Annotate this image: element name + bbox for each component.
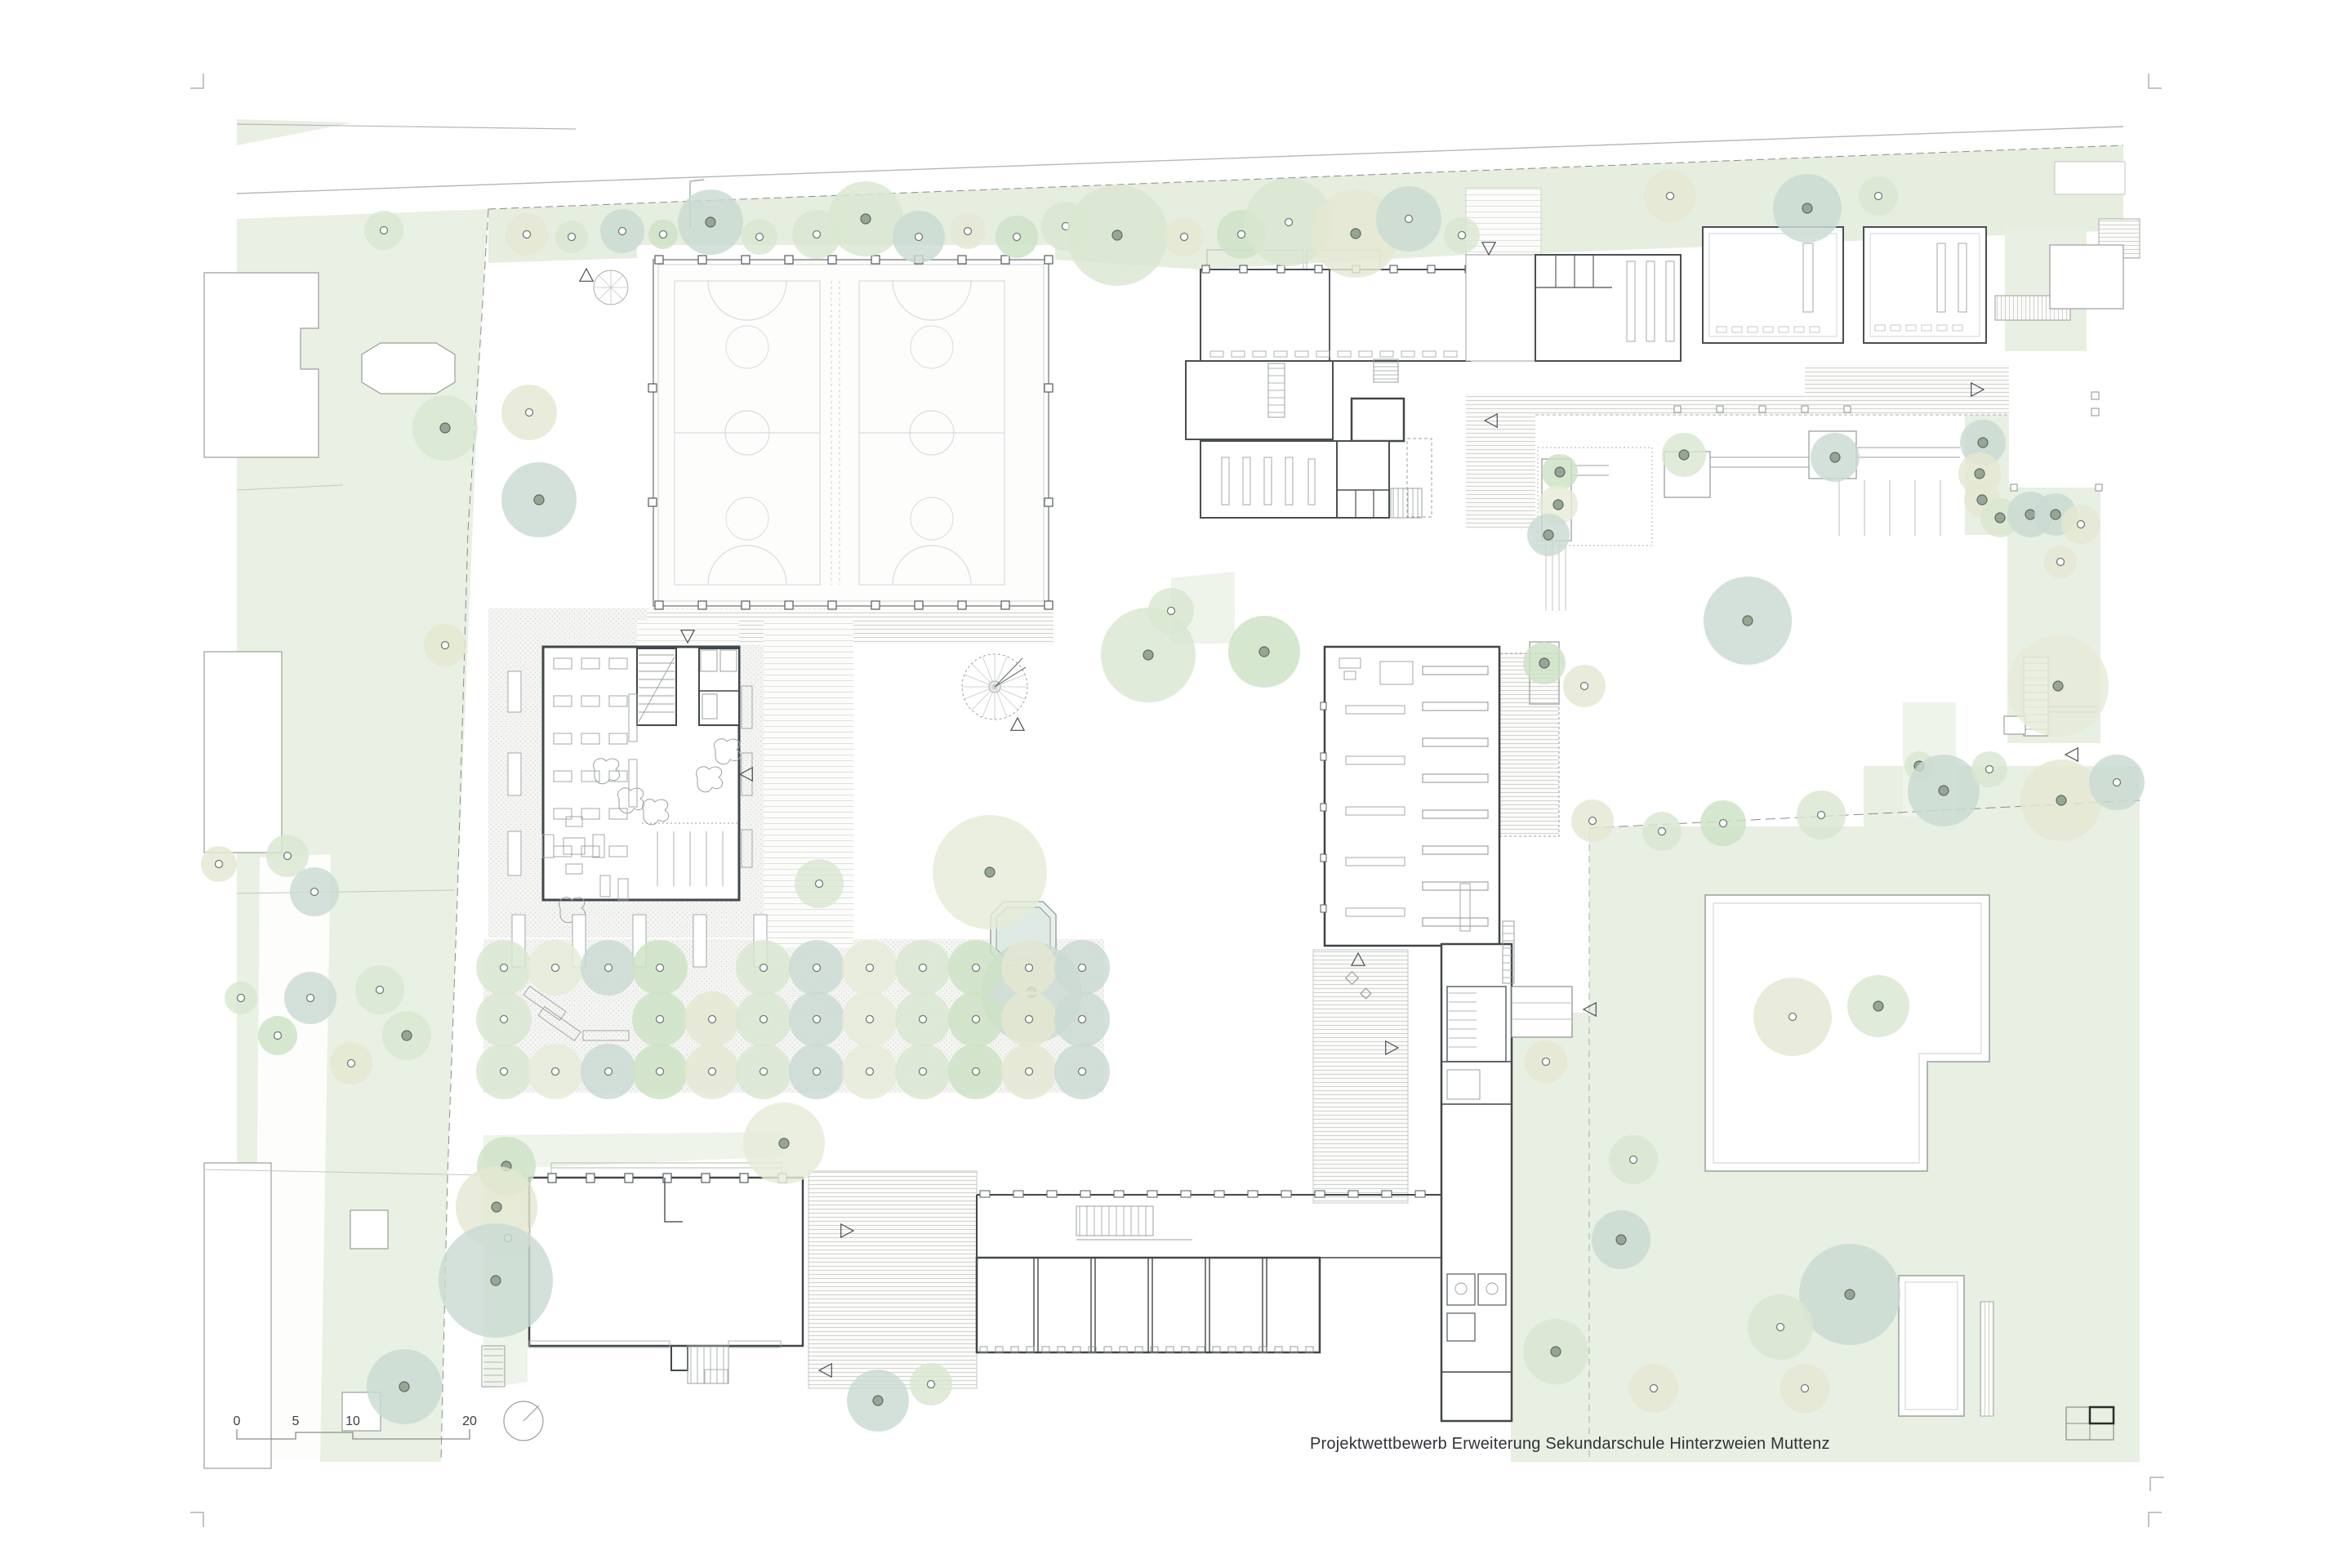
svg-text:0: 0 — [234, 1414, 241, 1428]
drawing-title: Projektwettbewerb Erweiterung Sekundarsc… — [1310, 1435, 1898, 1454]
plan-sheet: 051020 Projektwettbewerb Erweiterung Sek… — [0, 0, 2352, 1568]
svg-text:20: 20 — [462, 1414, 477, 1428]
svg-text:5: 5 — [292, 1414, 300, 1428]
svg-text:10: 10 — [345, 1414, 360, 1428]
sports-hall — [648, 256, 1053, 609]
site-plan-drawing: 051020 — [0, 0, 2352, 1568]
